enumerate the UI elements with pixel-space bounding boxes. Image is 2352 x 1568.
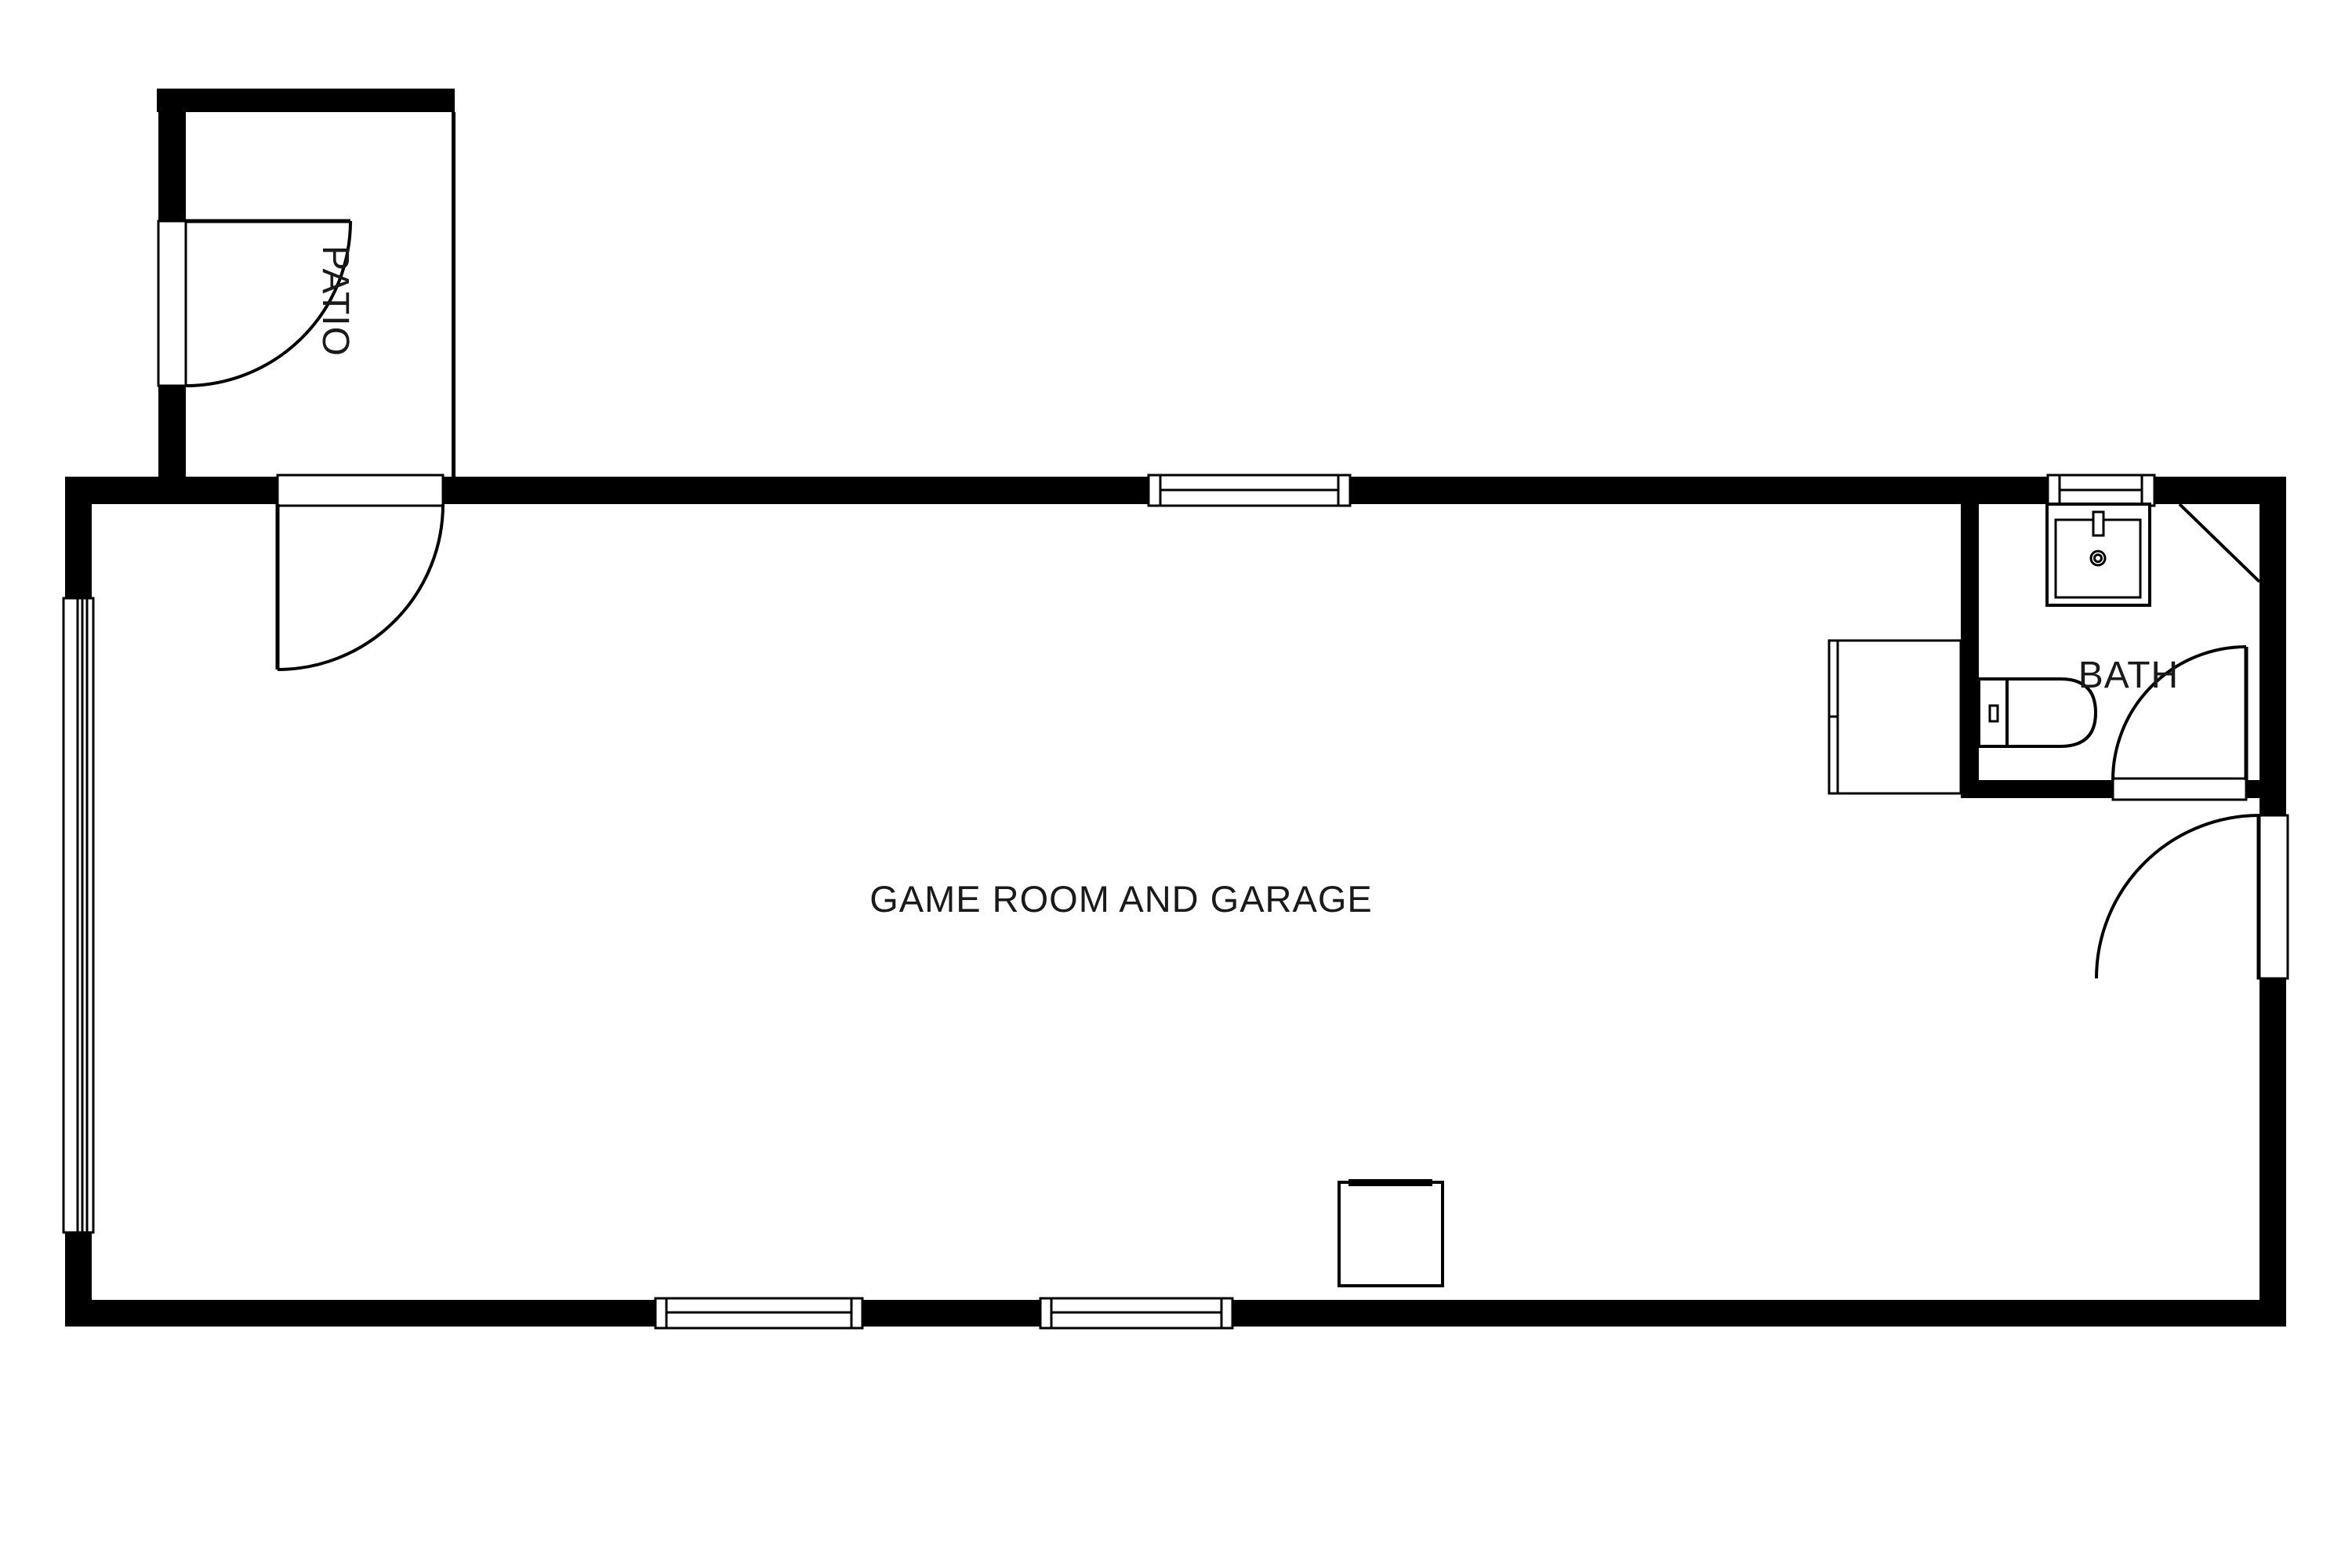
bath-wall-left xyxy=(1961,504,1979,780)
entry-door-swing-icon xyxy=(278,504,443,670)
wall-right-seg-2 xyxy=(2259,978,2286,1327)
bathroom: BATH xyxy=(1961,504,2286,800)
floor-plan: PATIO xyxy=(0,0,2352,1568)
appliance-top-bar xyxy=(1348,1179,1432,1186)
room-label-patio: PATIO xyxy=(314,245,356,357)
bath-door-opening xyxy=(2113,779,2246,800)
toilet-flush-button xyxy=(1990,706,1998,721)
corner-shelf-diagonal xyxy=(2180,504,2259,582)
wall-left-seg-2 xyxy=(65,1232,92,1327)
wall-top-seg-2 xyxy=(443,477,1149,504)
patio-wall-left-lower xyxy=(158,386,186,477)
entry-door xyxy=(278,475,443,670)
bath-wall-bottom-seg-1 xyxy=(1961,780,2113,798)
bath-wall-bottom-seg-2 xyxy=(2246,780,2286,798)
wall-left-seg-1 xyxy=(65,477,92,598)
window-bottom-left xyxy=(655,1298,862,1328)
patio-wall-left-upper xyxy=(158,89,186,221)
entry-door-opening xyxy=(278,475,443,506)
window-bath xyxy=(2048,475,2154,506)
patio-wall-right-thin xyxy=(452,112,456,477)
patio-wall-top xyxy=(157,89,455,112)
closet-cabinet xyxy=(1829,641,1961,793)
sink-faucet xyxy=(2093,512,2103,535)
patio-door-opening xyxy=(158,221,186,386)
wall-bottom-seg-3 xyxy=(1232,1300,2286,1327)
window-bottom-center xyxy=(1040,1298,1232,1328)
side-door-opening xyxy=(2258,815,2288,978)
side-exterior-door xyxy=(2096,815,2288,978)
wall-right-seg-1 xyxy=(2259,477,2286,815)
wall-bottom-seg-1 xyxy=(65,1300,655,1327)
appliance-square xyxy=(1339,1179,1443,1286)
room-label-bath: BATH xyxy=(2078,655,2179,696)
floor-plan-canvas: PATIO xyxy=(0,0,2352,1568)
room-label-game-room: GAME ROOM AND GARAGE xyxy=(869,878,1373,920)
window-left-wall xyxy=(64,598,93,1232)
wall-bottom-seg-2 xyxy=(862,1300,1040,1327)
window-top-center xyxy=(1149,475,1350,506)
appliance-outline xyxy=(1339,1182,1443,1286)
sink-icon xyxy=(2047,504,2150,605)
side-door-swing-icon xyxy=(2096,815,2259,978)
wall-top-seg-1 xyxy=(65,477,278,504)
patio-structure: PATIO xyxy=(157,89,456,477)
wall-top-seg-3 xyxy=(1350,477,2048,504)
closet-outline xyxy=(1829,641,1961,793)
